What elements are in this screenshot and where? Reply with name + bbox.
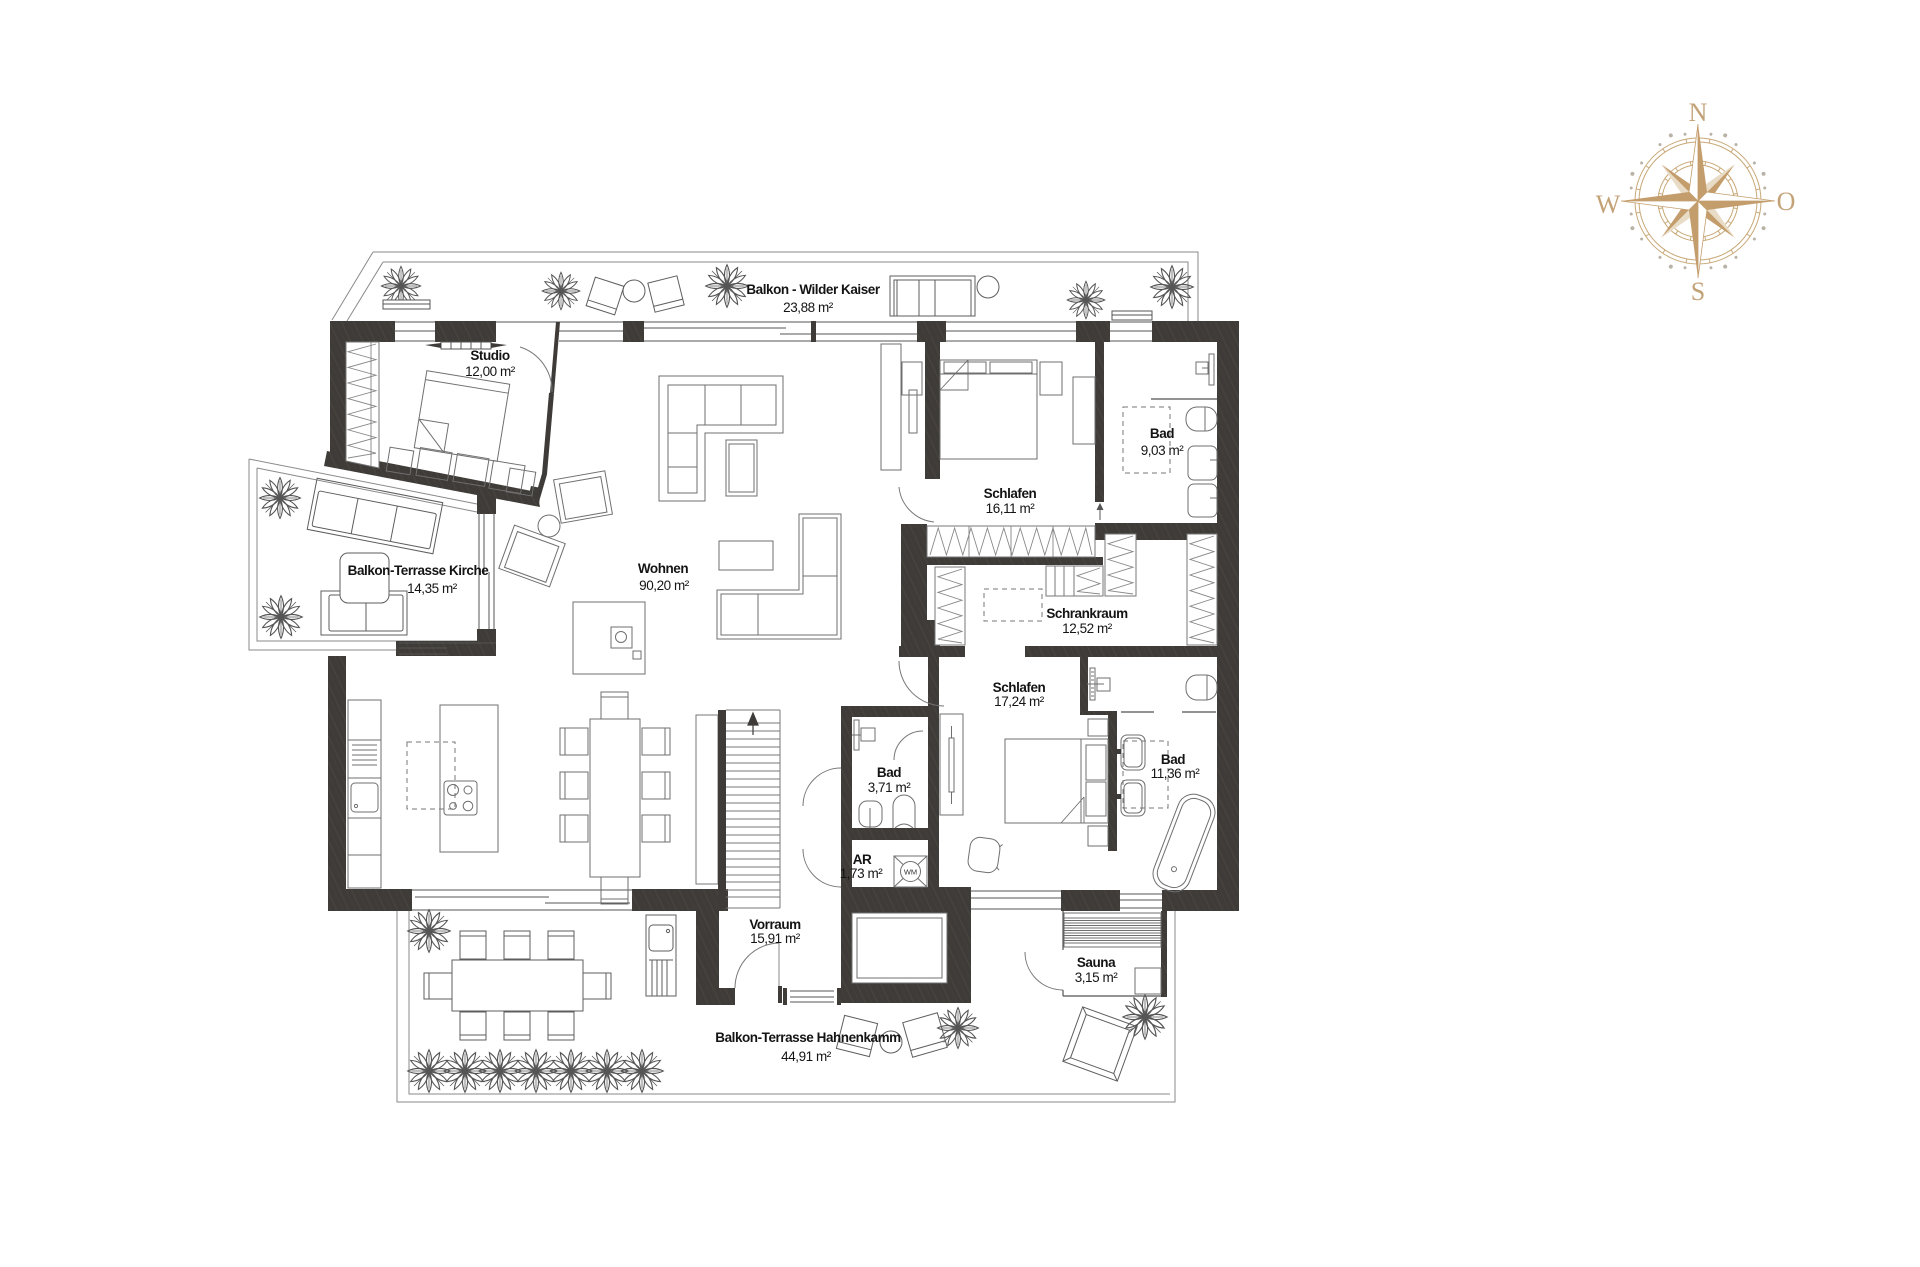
svg-text:3,71 m²: 3,71 m² [868, 780, 912, 795]
svg-text:AR: AR [853, 852, 872, 867]
svg-text:Balkon-Terrasse Kirche: Balkon-Terrasse Kirche [348, 563, 490, 578]
svg-text:12,00 m²: 12,00 m² [465, 364, 516, 379]
svg-text:12,52 m²: 12,52 m² [1062, 621, 1113, 636]
svg-text:N: N [1689, 98, 1708, 127]
svg-text:Bad: Bad [1161, 752, 1185, 767]
svg-text:Schrankraum: Schrankraum [1046, 606, 1128, 621]
svg-text:Vorraum: Vorraum [749, 917, 801, 932]
svg-text:Schlafen: Schlafen [984, 486, 1037, 501]
svg-text:O: O [1777, 187, 1796, 216]
svg-text:23,88 m²: 23,88 m² [783, 300, 834, 315]
svg-text:Balkon-Terrasse Hahnenkamm: Balkon-Terrasse Hahnenkamm [715, 1030, 901, 1045]
svg-text:15,91 m²: 15,91 m² [750, 931, 801, 946]
svg-text:11,36 m²: 11,36 m² [1151, 766, 1201, 781]
svg-text:Sauna: Sauna [1077, 955, 1116, 970]
svg-text:14,35 m²: 14,35 m² [407, 581, 458, 596]
svg-text:Bad: Bad [877, 765, 901, 780]
svg-text:WM: WM [904, 868, 917, 877]
svg-text:44,91 m²: 44,91 m² [781, 1049, 832, 1064]
svg-text:Balkon - Wilder Kaiser: Balkon - Wilder Kaiser [746, 282, 880, 297]
svg-text:17,24 m²: 17,24 m² [994, 694, 1045, 709]
svg-text:Schlafen: Schlafen [993, 680, 1046, 695]
svg-text:3,15 m²: 3,15 m² [1075, 970, 1119, 985]
svg-text:Wohnen: Wohnen [638, 561, 688, 576]
svg-text:W: W [1596, 190, 1621, 219]
svg-text:Bad: Bad [1150, 426, 1174, 441]
svg-text:9,03 m²: 9,03 m² [1141, 443, 1185, 458]
svg-text:Studio: Studio [470, 348, 509, 363]
svg-text:16,11 m²: 16,11 m² [986, 501, 1036, 516]
svg-text:S: S [1691, 277, 1705, 306]
svg-text:1,73 m²: 1,73 m² [840, 866, 884, 881]
svg-text:90,20 m²: 90,20 m² [639, 578, 690, 593]
